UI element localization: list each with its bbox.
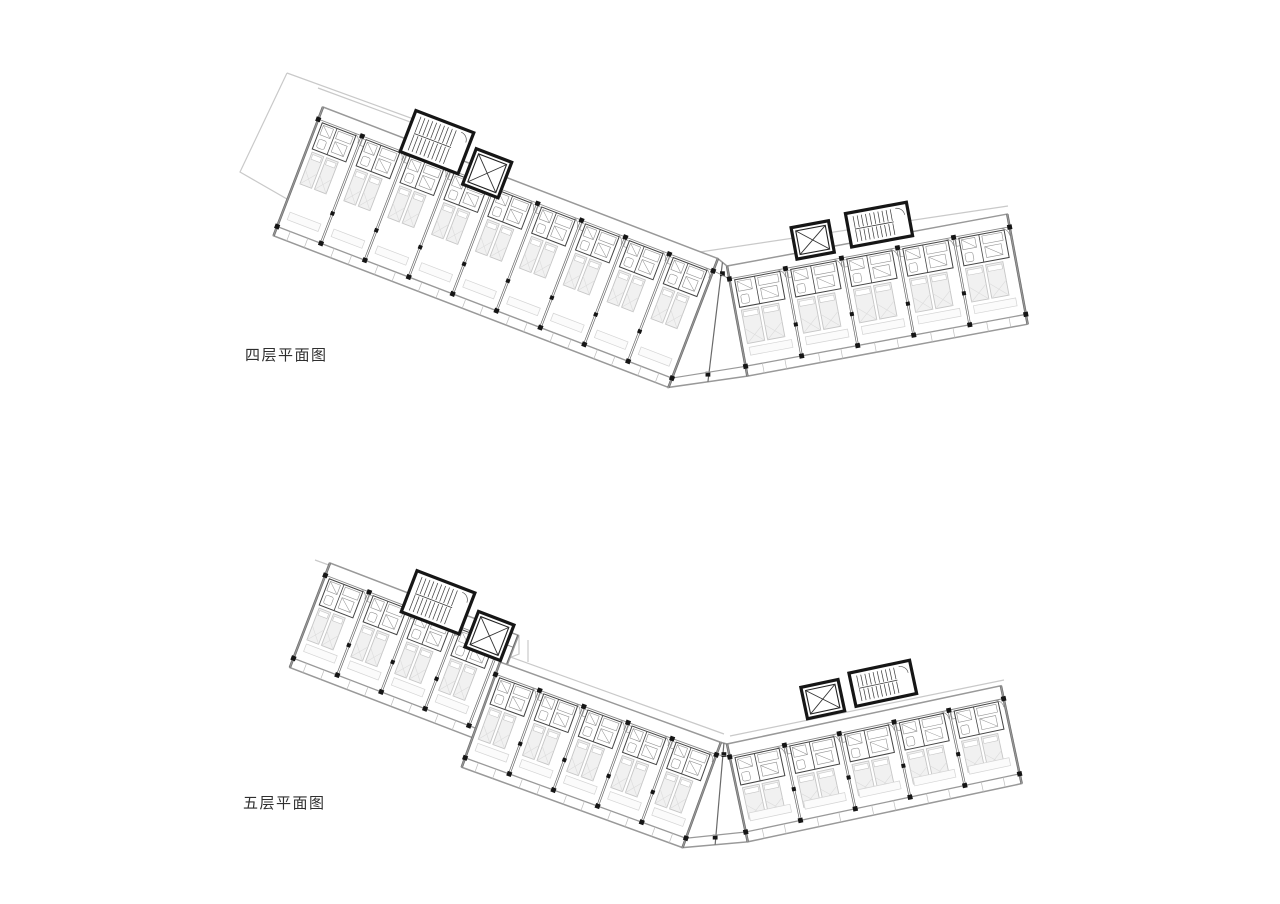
building-wing — [459, 661, 723, 848]
building-wing — [271, 106, 720, 388]
floor-plan-4 — [240, 73, 1030, 388]
drawing-sheet: 四层平面图 五层平面图 — [0, 0, 1280, 904]
floor-plan-4-label: 四层平面图 — [245, 344, 328, 365]
building-wing — [725, 685, 1024, 842]
floor-plans-drawing — [0, 0, 1280, 904]
floor-plan-5-label: 五层平面图 — [243, 792, 326, 813]
elevator-core — [791, 221, 834, 259]
floor-plan-5 — [288, 560, 1024, 848]
elevator-core — [801, 680, 845, 719]
